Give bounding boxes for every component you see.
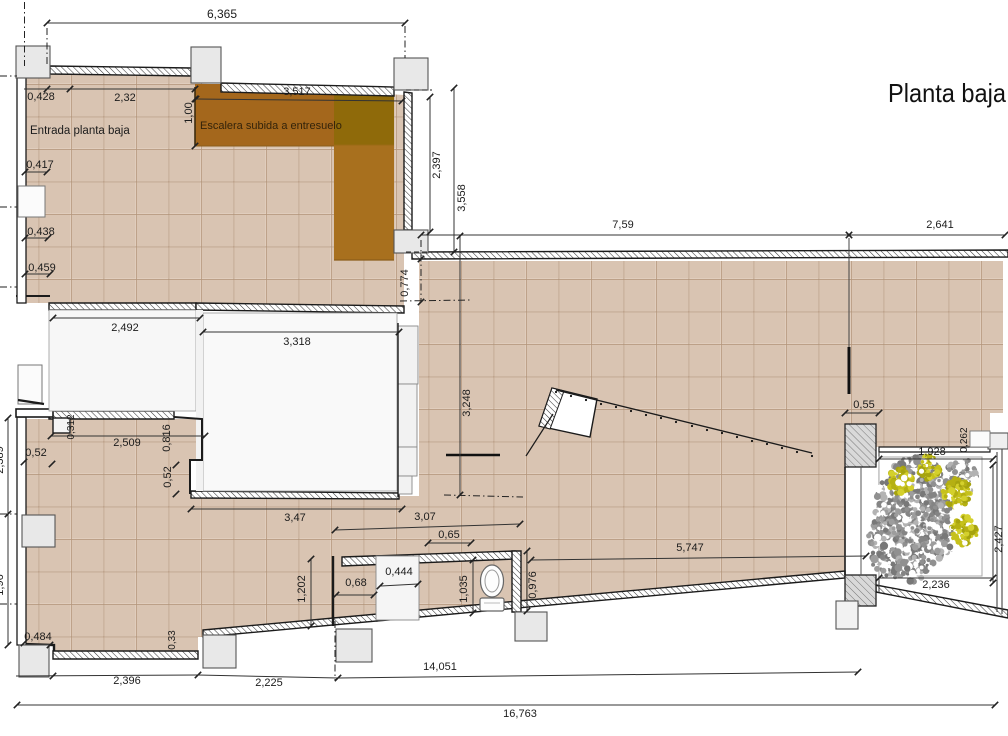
svg-text:0,484: 0,484: [24, 631, 52, 643]
svg-text:2,225: 2,225: [255, 677, 283, 689]
svg-text:0,33: 0,33: [167, 630, 178, 650]
svg-text:2,32: 2,32: [114, 92, 135, 104]
svg-text:0,816: 0,816: [161, 424, 173, 452]
svg-text:Escalera subida a entresuelo: Escalera subida a entresuelo: [200, 120, 342, 132]
svg-text:0,52: 0,52: [162, 466, 174, 487]
svg-text:2,641: 2,641: [926, 219, 954, 231]
svg-text:0,438: 0,438: [27, 226, 55, 238]
svg-text:0,774: 0,774: [399, 269, 411, 297]
svg-text:2,397: 2,397: [431, 151, 443, 179]
svg-text:2,236: 2,236: [922, 579, 950, 591]
svg-text:0,976: 0,976: [527, 571, 539, 599]
svg-text:2,427: 2,427: [993, 525, 1005, 553]
svg-text:0,65: 0,65: [438, 529, 459, 541]
svg-text:14,051: 14,051: [423, 661, 457, 673]
svg-text:1,202: 1,202: [296, 575, 308, 603]
svg-text:3,07: 3,07: [414, 511, 435, 523]
svg-text:0,68: 0,68: [345, 577, 366, 589]
svg-text:0,459: 0,459: [28, 262, 56, 274]
svg-text:3,517: 3,517: [283, 86, 311, 98]
svg-text:0,262: 0,262: [959, 427, 970, 452]
svg-text:3,248: 3,248: [461, 389, 473, 417]
svg-text:1,928: 1,928: [918, 446, 946, 458]
svg-text:3,558: 3,558: [456, 184, 468, 212]
svg-text:2,492: 2,492: [111, 322, 139, 334]
svg-text:1,00: 1,00: [183, 102, 195, 123]
svg-text:7,59: 7,59: [612, 219, 633, 231]
svg-text:3,47: 3,47: [284, 512, 305, 524]
svg-text:0,312: 0,312: [66, 414, 77, 439]
svg-text:0,417: 0,417: [26, 159, 54, 171]
svg-text:16,763: 16,763: [503, 708, 537, 720]
svg-text:6,365: 6,365: [207, 7, 237, 21]
svg-text:0,428: 0,428: [27, 91, 55, 103]
svg-text:0,52: 0,52: [25, 447, 46, 459]
svg-text:1,035: 1,035: [458, 575, 470, 603]
svg-text:Planta baja: Planta baja: [888, 78, 1006, 108]
svg-text:Entrada planta baja: Entrada planta baja: [30, 125, 130, 137]
svg-text:3,318: 3,318: [283, 336, 311, 348]
svg-text:2,509: 2,509: [113, 437, 141, 449]
svg-text:1,96: 1,96: [0, 574, 6, 595]
svg-text:0,444: 0,444: [385, 566, 413, 578]
svg-text:2,389: 2,389: [0, 446, 6, 474]
svg-text:0,55: 0,55: [853, 399, 874, 411]
svg-text:2,396: 2,396: [113, 675, 141, 687]
svg-text:5,747: 5,747: [676, 542, 704, 554]
